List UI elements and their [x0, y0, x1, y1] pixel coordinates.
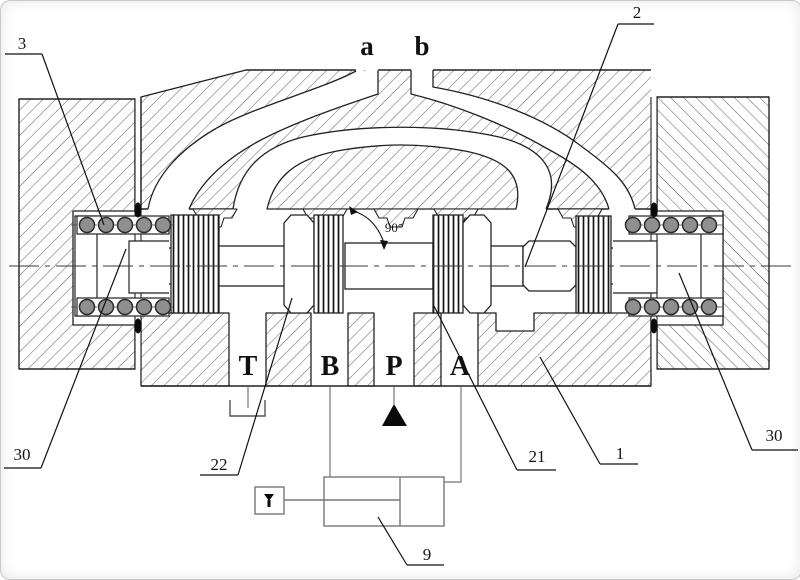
main-port-label-A: A	[450, 351, 471, 382]
pilot-port-label-b: b	[414, 31, 429, 61]
callout-label-30: 30	[14, 445, 31, 464]
pilot-box-glyph-stem	[268, 500, 271, 507]
callout-label-2: 2	[633, 3, 642, 22]
callout-label-21: 21	[529, 447, 546, 466]
pressure-source-symbol	[382, 404, 407, 426]
spool-land-4-grooved	[576, 216, 611, 313]
main-port-label-P: P	[385, 351, 402, 382]
port-A-line	[444, 387, 461, 482]
spool-land-2-grooves	[314, 215, 343, 313]
callout-label-1: 1	[616, 444, 625, 463]
callout-label-22: 22	[211, 455, 228, 474]
callout-label-30: 30	[766, 426, 783, 445]
pilot-port-label-a: a	[360, 31, 374, 61]
patent-figure: 90° abTBPA323022211309	[0, 0, 800, 580]
spool-land-3-grooves	[433, 215, 463, 313]
hydraulic-circuit	[230, 387, 461, 526]
spool-land-1-grooved	[171, 215, 219, 313]
angle-label: 90°	[385, 220, 403, 235]
valve-section-drawing: 90° abTBPA323022211309	[1, 1, 800, 579]
cylinder-symbol	[324, 477, 444, 526]
main-port-label-T: T	[239, 351, 258, 382]
callout-label-3: 3	[18, 34, 27, 53]
main-port-label-B: B	[321, 351, 340, 382]
spool-land-2	[284, 215, 314, 313]
callout-label-9: 9	[423, 545, 432, 564]
spool-land-3	[463, 215, 491, 313]
